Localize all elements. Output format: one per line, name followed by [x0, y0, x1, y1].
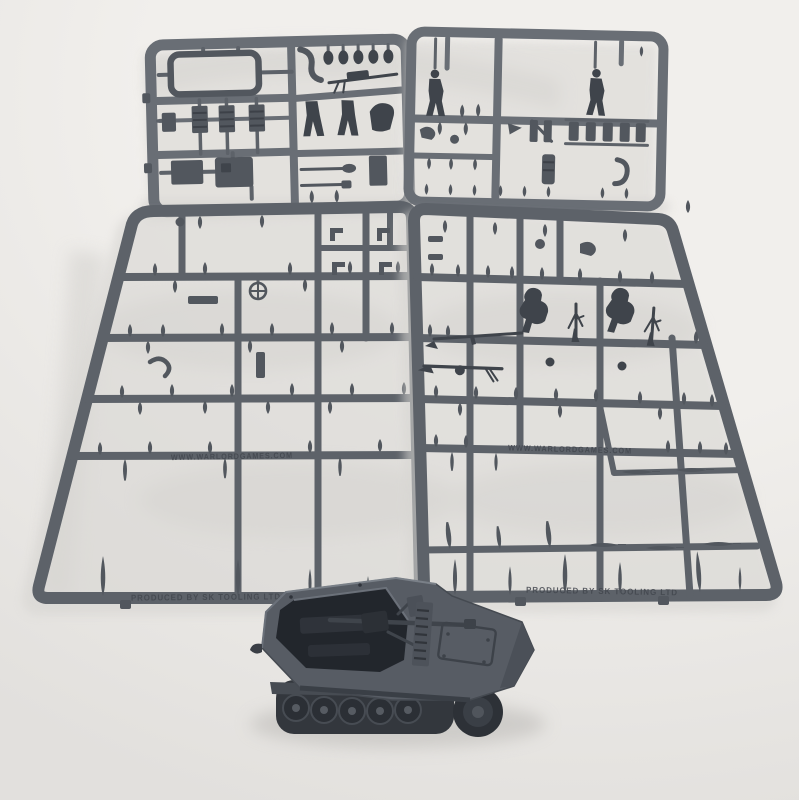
- photo-canvas: WWW.WARLORDGAMES.COM PRODUCED BY SK TOOL…: [0, 0, 799, 800]
- molded-text-producer-left: PRODUCED BY SK TOOLING LTD: [131, 591, 281, 602]
- sprue-top-right: [402, 31, 664, 214]
- cartridge-part: [542, 154, 556, 184]
- rear-hook: [250, 644, 262, 654]
- sprue-top-left: [141, 39, 410, 221]
- sprue-bottom-right: WWW.WARLORDGAMES.COM PRODUCED BY SK TOOL…: [406, 200, 777, 606]
- model-kit-photo: WWW.WARLORDGAMES.COM PRODUCED BY SK TOOL…: [0, 0, 799, 800]
- track-link-parts: [530, 120, 646, 144]
